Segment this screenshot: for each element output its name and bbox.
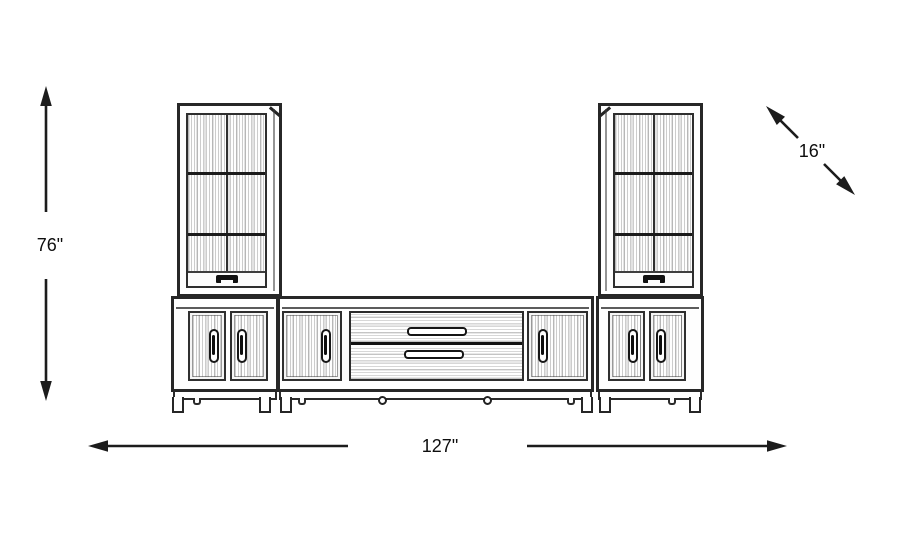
furniture-leg — [280, 397, 292, 413]
furniture-leg — [259, 397, 271, 413]
right-base-door — [608, 311, 645, 381]
furniture-leg — [172, 397, 184, 413]
console-drawer-stack — [349, 311, 524, 381]
right-base-top-rail — [601, 307, 699, 309]
right-pier-cabinet — [598, 103, 703, 297]
right-pier-side-panel-line — [605, 109, 607, 291]
tv-console — [277, 296, 594, 392]
left-base-door — [188, 311, 226, 381]
leg-bracket — [193, 398, 201, 405]
drawer-pull — [407, 327, 467, 336]
door-pull — [656, 329, 666, 363]
console-right-door — [527, 311, 588, 381]
right-pier-handle — [643, 275, 665, 283]
apron-ring-detail — [483, 396, 492, 405]
door-pull — [538, 329, 548, 363]
apron-ring-detail — [378, 396, 387, 405]
door-pull — [237, 329, 247, 363]
door-pull — [209, 329, 219, 363]
left-base-cabinet — [171, 296, 279, 392]
right-base-door — [649, 311, 686, 381]
furniture-leg — [689, 397, 701, 413]
console-left-door — [282, 311, 342, 381]
right-pier-door — [613, 113, 694, 288]
right-base-cabinet — [596, 296, 704, 392]
left-base-door — [230, 311, 268, 381]
left-pier-mullion — [226, 115, 228, 271]
leg-bracket — [298, 398, 306, 405]
right-pier-bottom-rail — [615, 271, 692, 286]
right-pier-shelf-line — [615, 233, 692, 236]
leg-bracket — [567, 398, 575, 405]
left-pier-side-panel-line — [273, 109, 275, 291]
height-dimension-label: 76" — [26, 234, 74, 256]
leg-bracket — [668, 398, 676, 405]
left-pier-door — [186, 113, 267, 288]
drawer-pull — [404, 350, 464, 359]
door-pull — [321, 329, 331, 363]
dimension-arrows — [0, 0, 900, 550]
console-apron — [279, 392, 592, 400]
furniture-leg — [599, 397, 611, 413]
furniture-leg — [581, 397, 593, 413]
depth-dimension-label: 16" — [790, 140, 834, 162]
width-dimension-label: 127" — [402, 435, 478, 457]
right-base-apron — [598, 392, 702, 400]
door-pull — [628, 329, 638, 363]
right-pier-shelf-line — [615, 172, 692, 175]
left-pier-shelf-line — [188, 172, 265, 175]
right-pier-mullion — [653, 115, 655, 271]
left-base-top-rail — [176, 307, 274, 309]
left-pier-cabinet — [177, 103, 282, 297]
left-pier-shelf-line — [188, 233, 265, 236]
left-pier-handle — [216, 275, 238, 283]
left-pier-bottom-rail — [188, 271, 265, 286]
dimension-diagram: 76" 127" 16" — [0, 0, 900, 550]
console-top-rail — [282, 307, 589, 309]
